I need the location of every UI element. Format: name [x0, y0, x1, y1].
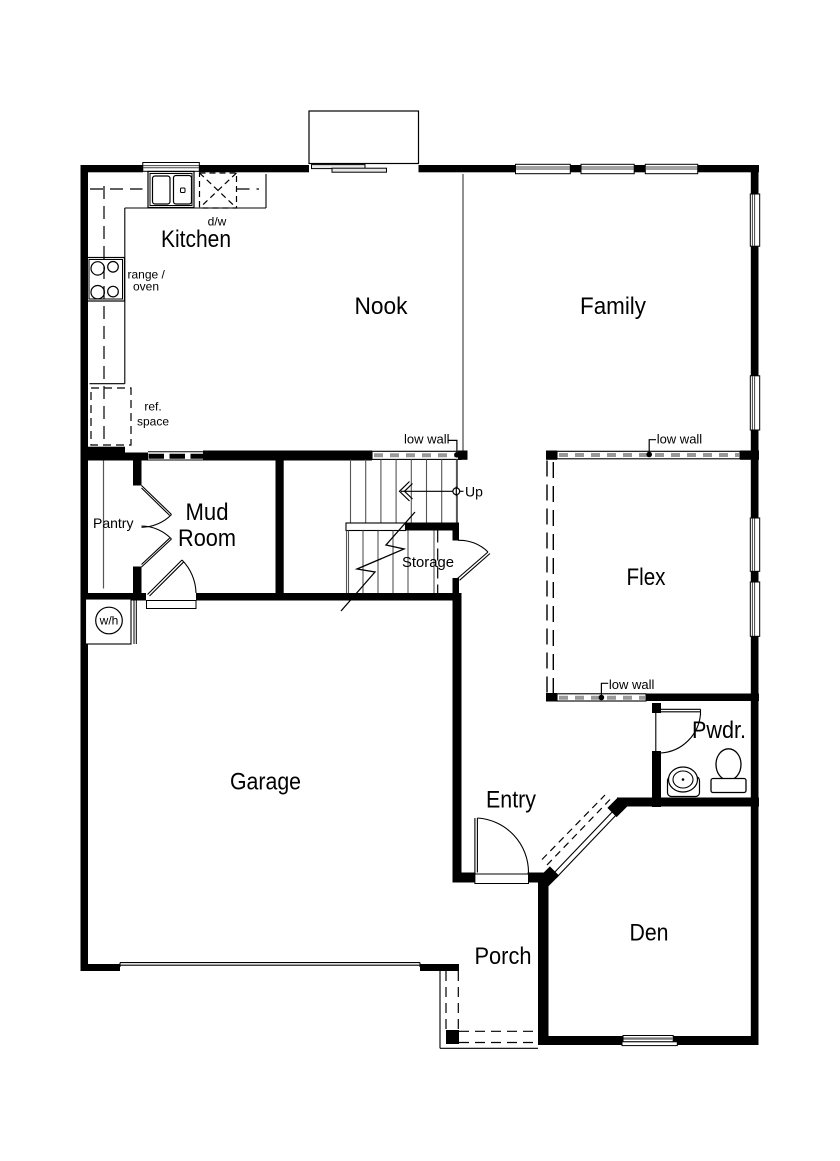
- svg-text:Den: Den: [630, 920, 669, 947]
- svg-text:Entry: Entry: [486, 787, 536, 814]
- svg-text:Pwdr.: Pwdr.: [692, 717, 746, 744]
- svg-text:Pantry: Pantry: [93, 515, 133, 531]
- svg-text:Porch: Porch: [475, 943, 532, 970]
- svg-text:low wall: low wall: [657, 432, 703, 447]
- svg-text:Garage: Garage: [230, 769, 301, 796]
- svg-text:ref.: ref.: [144, 400, 161, 414]
- svg-text:d/w: d/w: [208, 215, 227, 229]
- svg-text:Nook: Nook: [355, 293, 409, 320]
- svg-text:Kitchen: Kitchen: [161, 226, 231, 253]
- svg-text:low wall: low wall: [404, 432, 450, 447]
- svg-text:w/h: w/h: [99, 614, 119, 628]
- svg-text:Mud: Mud: [186, 499, 229, 526]
- svg-text:Storage: Storage: [402, 554, 454, 571]
- svg-text:low wall: low wall: [609, 677, 655, 692]
- svg-text:Family: Family: [580, 293, 646, 320]
- svg-text:Up: Up: [465, 484, 483, 500]
- svg-text:oven: oven: [133, 280, 159, 294]
- svg-text:Flex: Flex: [627, 564, 666, 591]
- svg-text:Room: Room: [178, 525, 236, 552]
- svg-text:space: space: [137, 415, 169, 429]
